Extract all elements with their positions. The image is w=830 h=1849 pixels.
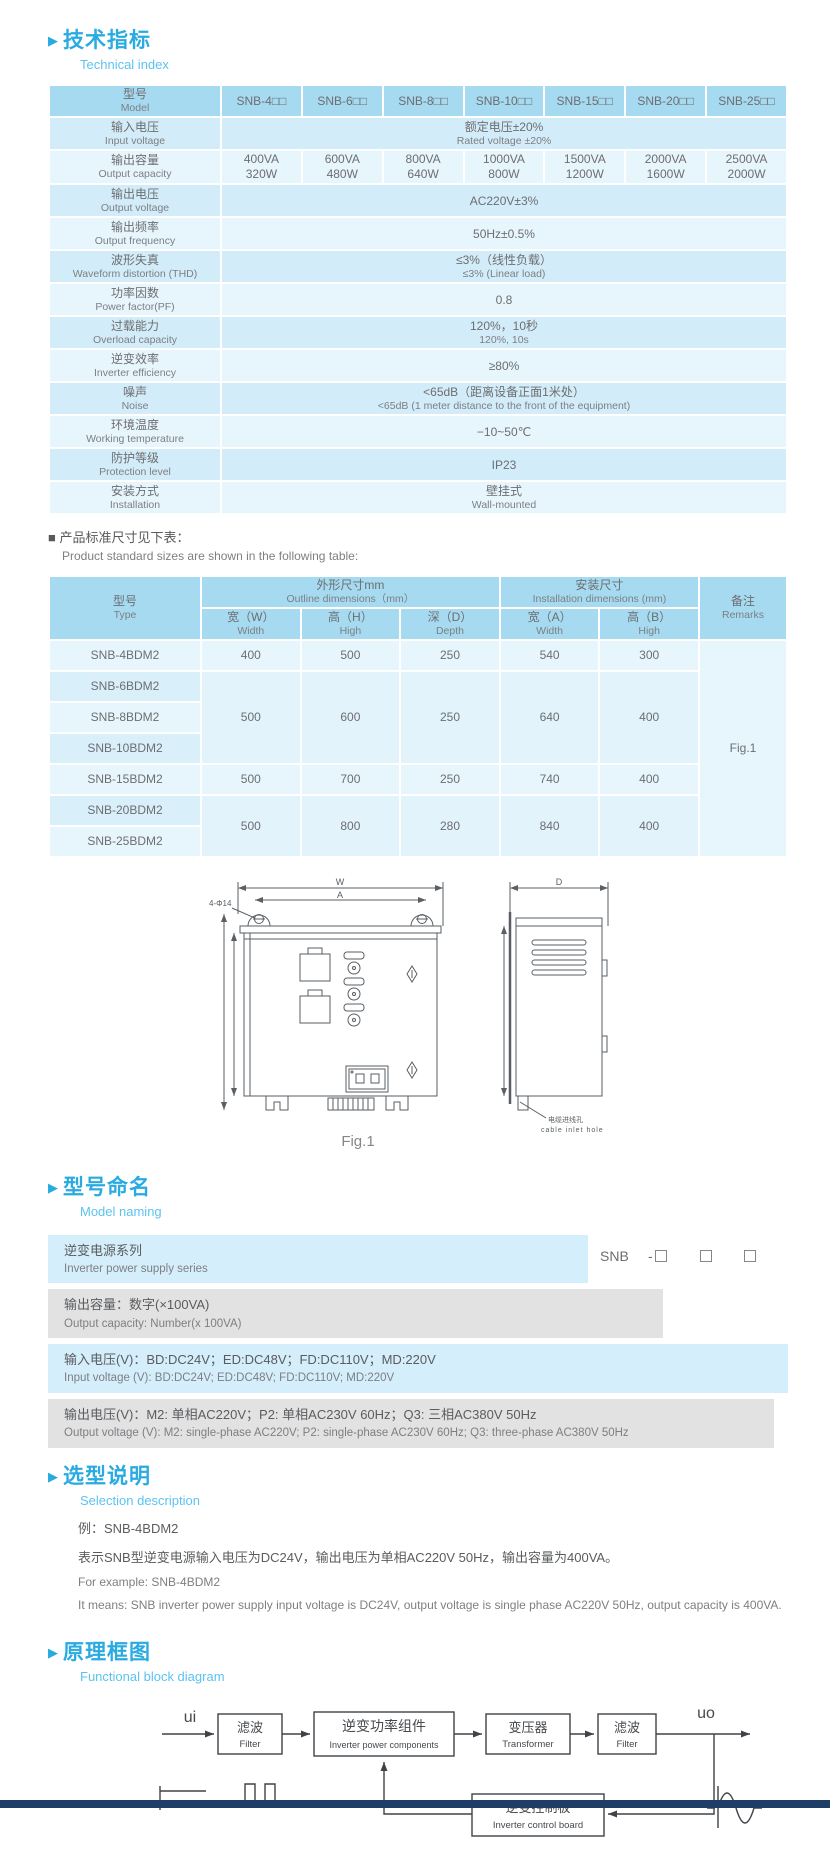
louver-3 xyxy=(532,960,586,965)
spec-value: <65dB（距离设备正面1米处）<65dB (1 meter distance … xyxy=(222,383,786,414)
dim-type: SNB-8BDM2 xyxy=(50,703,200,732)
spec-model-col: SNB-20□□ xyxy=(626,86,705,116)
spec-row-input-voltage: 输入电压Input voltage 额定电压±20%Rated voltage … xyxy=(50,118,786,149)
spec-label: 输出电压Output voltage xyxy=(50,185,220,216)
dim-value: 250 xyxy=(401,641,499,670)
foot-right xyxy=(386,1096,408,1110)
section-model-naming: ▶型号命名 Model naming xyxy=(48,1171,788,1219)
side-foot xyxy=(518,1096,528,1110)
dim-value: 640 xyxy=(501,672,599,763)
spec-value: ≥80% xyxy=(222,350,786,381)
spec-label: 噪声Noise xyxy=(50,383,220,414)
spec-label: 波形失真Waveform distortion (THD) xyxy=(50,251,220,282)
dim-type: SNB-20BDM2 xyxy=(50,796,200,825)
spec-model-col: SNB-6□□ xyxy=(303,86,382,116)
dim-value: 800 xyxy=(302,796,400,856)
dim-header-type: 型号Type xyxy=(50,577,200,638)
holes-leader-line xyxy=(232,908,255,918)
inverter-en: Inverter power components xyxy=(329,1740,439,1750)
model-label-zh: 型号 xyxy=(52,87,218,102)
selection-example-en: For example: SNB-4BDM2 xyxy=(78,1575,788,1589)
dim-label-d: D xyxy=(556,877,563,887)
dim-type: SNB-6BDM2 xyxy=(50,672,200,701)
knob-2 xyxy=(348,988,360,1000)
section-selection-description: ▶选型说明 Selection description xyxy=(48,1460,788,1508)
spec-label: 安装方式Installation xyxy=(50,482,220,513)
terminal-panel xyxy=(346,1066,388,1092)
spec-value: IP23 xyxy=(222,449,786,480)
louver-1 xyxy=(532,940,586,945)
dim-header-remarks: 备注Remarks xyxy=(700,577,786,638)
meter-2 xyxy=(300,996,330,1023)
spec-value: 600VA480W xyxy=(303,151,382,183)
spec-value: 壁挂式Wall-mounted xyxy=(222,482,786,513)
spec-value: 50Hz±0.5% xyxy=(222,218,786,249)
dim-row: SNB-6BDM2 500 600 250 640 400 xyxy=(50,672,786,701)
dim-header-row1: 型号Type 外形尺寸mmOutline dimensions（mm） 安装尺寸… xyxy=(50,577,786,607)
transformer-en: Transformer xyxy=(502,1739,553,1750)
dim-label-a: A xyxy=(337,890,343,900)
dim-row: SNB-20BDM2 500 800 280 840 400 xyxy=(50,796,786,825)
dim-value: 700 xyxy=(302,765,400,794)
dim-row: SNB-15BDM2 500 700 250 740 400 xyxy=(50,765,786,794)
dim-value: 500 xyxy=(202,796,300,856)
section-arrow-icon: ▶ xyxy=(48,33,58,48)
dim-type: SNB-10BDM2 xyxy=(50,734,200,763)
size-note-zh: 产品标准尺寸见下表： xyxy=(59,530,189,545)
dim-value: 500 xyxy=(202,672,300,763)
spec-row-temperature: 环境温度Working temperature −10~50℃ xyxy=(50,416,786,447)
dim-value: 280 xyxy=(401,796,499,856)
filter2-en: Filter xyxy=(616,1739,637,1750)
spec-label: 输出容量Output capacity xyxy=(50,151,220,183)
dim-header-outline: 外形尺寸mmOutline dimensions（mm） xyxy=(202,577,499,607)
spec-value: AC220V±3% xyxy=(222,185,786,216)
spec-value: 1000VA800W xyxy=(465,151,544,183)
dim-col-d: 深（D）Depth xyxy=(401,609,499,639)
section-block-diagram: ▶原理框图 Functional block diagram xyxy=(48,1636,788,1684)
bottom-grille xyxy=(328,1098,374,1110)
code-box-icon xyxy=(744,1250,756,1262)
code-box-icon xyxy=(700,1250,712,1262)
transformer-zh: 变压器 xyxy=(508,1720,547,1735)
block-diagram-svg: ui uo 滤波 Filter 逆变功率组件 Inverter power co… xyxy=(142,1696,762,1844)
size-note-en: Product standard sizes are shown in the … xyxy=(62,549,788,563)
selection-desc-en: It means: SNB inverter power supply inpu… xyxy=(78,1598,788,1612)
naming-row-input-voltage: 输入电压(V)：BD:DC24V；ED:DC48V；FD:DC110V；MD:2… xyxy=(48,1344,788,1393)
dim-col-h: 高（H）High xyxy=(302,609,400,639)
footer-bar xyxy=(0,1800,830,1808)
dim-type: SNB-25BDM2 xyxy=(50,827,200,856)
spec-label: 过载能力Overload capacity xyxy=(50,317,220,348)
dim-value: 300 xyxy=(600,641,698,670)
filter1-en: Filter xyxy=(239,1739,260,1750)
code-box-icon xyxy=(655,1250,667,1262)
naming-row-capacity: 输出容量：数字(×100VA) Output capacity: Number(… xyxy=(48,1289,663,1338)
cabinet-top-flange xyxy=(240,926,441,933)
cabinet-side xyxy=(516,926,602,1096)
inverter-zh: 逆变功率组件 xyxy=(342,1718,426,1734)
holes-label: 4-Φ14 xyxy=(209,899,232,908)
code-output-slot xyxy=(742,1248,756,1264)
figure-1: W A D 4-Φ14 电缆进线孔 cable inlet hole Fig.1 xyxy=(208,874,788,1159)
cable-inlet-label-zh: 电缆进线孔 xyxy=(548,1115,583,1124)
block-diagram: ui uo 滤波 Filter 逆变功率组件 Inverter power co… xyxy=(142,1696,788,1849)
spec-value: 800VA640W xyxy=(384,151,463,183)
hinge-bottom xyxy=(602,1036,607,1052)
model-naming-diagram: SNB - 逆变电源系列 Inverter power supply serie… xyxy=(48,1235,788,1448)
louver-4 xyxy=(532,970,586,975)
dimension-table: 型号Type 外形尺寸mmOutline dimensions（mm） 安装尺寸… xyxy=(48,575,788,857)
size-note: ■ 产品标准尺寸见下表： Product standard sizes are … xyxy=(48,527,788,563)
technical-title-en: Technical index xyxy=(80,57,788,72)
dim-value: 840 xyxy=(501,796,599,856)
spec-model-col: SNB-15□□ xyxy=(545,86,624,116)
spec-value: 2000VA1600W xyxy=(626,151,705,183)
section-technical-index: ▶技术指标 Technical index xyxy=(48,24,788,72)
spec-label: 环境温度Working temperature xyxy=(50,416,220,447)
output-label: uo xyxy=(697,1705,715,1722)
filter2-zh: 滤波 xyxy=(614,1720,640,1735)
block-title-zh: 原理框图 xyxy=(63,1641,151,1664)
dim-row: SNB-4BDM2 400 500 250 540 300 Fig.1 xyxy=(50,641,786,670)
spec-model-col: SNB-10□□ xyxy=(465,86,544,116)
meter-1 xyxy=(300,954,330,981)
spec-label: 输入电压Input voltage xyxy=(50,118,220,149)
code-series: SNB xyxy=(600,1248,629,1264)
spec-label: 逆变效率Inverter efficiency xyxy=(50,350,220,381)
spec-row-output-frequency: 输出频率Output frequency 50Hz±0.5% xyxy=(50,218,786,249)
louver-2 xyxy=(532,950,586,955)
spec-model-col: SNB-25□□ xyxy=(707,86,786,116)
knob-3 xyxy=(348,1014,360,1026)
spec-value: 2500VA2000W xyxy=(707,151,786,183)
page-content: ▶技术指标 Technical index 型号Model SNB-4□□ SN… xyxy=(0,0,830,1849)
spec-row-output-capacity: 输出容量Output capacity 400VA320W 600VA480W … xyxy=(50,151,786,183)
dim-value: 500 xyxy=(302,641,400,670)
dim-value: 400 xyxy=(202,641,300,670)
spec-header-row: 型号Model SNB-4□□ SNB-6□□ SNB-8□□ SNB-10□□… xyxy=(50,86,786,116)
spec-table: 型号Model SNB-4□□ SNB-6□□ SNB-8□□ SNB-10□□… xyxy=(48,84,788,515)
dim-type: SNB-4BDM2 xyxy=(50,641,200,670)
spec-value: 120%，10秒120%, 10s xyxy=(222,317,786,348)
spec-row-overload: 过载能力Overload capacity 120%，10秒120%, 10s xyxy=(50,317,786,348)
figure-caption: Fig.1 xyxy=(341,1133,374,1150)
spec-row-waveform: 波形失真Waveform distortion (THD) ≤3%（线性负载）≤… xyxy=(50,251,786,282)
cabinet-drawing: W A D 4-Φ14 电缆进线孔 cable inlet hole Fig.1 xyxy=(208,874,628,1154)
control-en: Inverter control board xyxy=(493,1820,583,1831)
spec-row-efficiency: 逆变效率Inverter efficiency ≥80% xyxy=(50,350,786,381)
catalog-page: { "colors":{"accent":"#29abe2","accent_l… xyxy=(0,0,830,1808)
dim-value: 250 xyxy=(401,765,499,794)
technical-title-zh: 技术指标 xyxy=(63,29,151,52)
dim-value: 540 xyxy=(501,641,599,670)
spec-value: 0.8 xyxy=(222,284,786,315)
section-arrow-icon: ▶ xyxy=(48,1469,58,1484)
section-arrow-icon: ▶ xyxy=(48,1180,58,1195)
spec-model-col: SNB-8□□ xyxy=(384,86,463,116)
switch-1 xyxy=(344,952,364,959)
dim-value: 400 xyxy=(600,765,698,794)
naming-title-en: Model naming xyxy=(80,1204,788,1219)
knob-1 xyxy=(348,962,360,974)
spec-row-power-factor: 功率因数Power factor(PF) 0.8 xyxy=(50,284,786,315)
dim-remark: Fig.1 xyxy=(700,641,786,856)
spec-row-output-voltage: 输出电压Output voltage AC220V±3% xyxy=(50,185,786,216)
naming-row-output-voltage: 输出电压(V)：M2: 单相AC220V；P2: 单相AC230V 60Hz；Q… xyxy=(48,1399,774,1448)
dim-type: SNB-15BDM2 xyxy=(50,765,200,794)
dim-value: 500 xyxy=(202,765,300,794)
selection-example-zh: 例：SNB-4BDM2 xyxy=(78,1518,788,1537)
selection-title-en: Selection description xyxy=(80,1493,788,1508)
naming-title-zh: 型号命名 xyxy=(63,1176,151,1199)
foot-left xyxy=(266,1096,288,1110)
filter1-zh: 滤波 xyxy=(237,1720,263,1735)
dim-col-w: 宽（W）Width xyxy=(202,609,300,639)
spec-label: 功率因数Power factor(PF) xyxy=(50,284,220,315)
code-dash: - xyxy=(648,1248,653,1264)
spec-value: ≤3%（线性负载）≤3% (Linear load) xyxy=(222,251,786,282)
dim-value: 600 xyxy=(302,672,400,763)
side-top-flange xyxy=(516,918,602,926)
code-input-slot xyxy=(698,1248,712,1264)
input-label: ui xyxy=(184,1709,196,1726)
dim-value: 400 xyxy=(600,672,698,763)
dim-value: 740 xyxy=(501,765,599,794)
spec-label: 防护等级Protection level xyxy=(50,449,220,480)
selection-desc-zh: 表示SNB型逆变电源输入电压为DC24V，输出电压为单相AC220V 50Hz，… xyxy=(78,1547,788,1566)
model-code-row: SNB - xyxy=(48,1248,788,1266)
cable-inlet-label-en: cable inlet hole xyxy=(541,1127,604,1134)
square-bullet-icon: ■ xyxy=(48,530,56,545)
model-label-en: Model xyxy=(52,102,218,115)
section-arrow-icon: ▶ xyxy=(48,1645,58,1660)
dim-value: 400 xyxy=(600,796,698,856)
spec-model-col: SNB-4□□ xyxy=(222,86,301,116)
spec-row-installation: 安装方式Installation 壁挂式Wall-mounted xyxy=(50,482,786,513)
dim-header-install: 安装尺寸Installation dimensions (mm) xyxy=(501,577,698,607)
dim-label-w: W xyxy=(336,877,345,887)
code-capacity-slot: - xyxy=(648,1248,667,1264)
spec-header-model: 型号Model xyxy=(50,86,220,116)
switch-2 xyxy=(344,978,364,985)
spec-value: 400VA320W xyxy=(222,151,301,183)
dim-value: 250 xyxy=(401,672,499,763)
hinge-top xyxy=(602,960,607,976)
spec-value: −10~50℃ xyxy=(222,416,786,447)
spec-row-noise: 噪声Noise <65dB（距离设备正面1米处）<65dB (1 meter d… xyxy=(50,383,786,414)
mount-ear-right xyxy=(411,915,433,926)
switch-3 xyxy=(344,1004,364,1011)
selection-title-zh: 选型说明 xyxy=(63,1465,151,1488)
spec-value: 1500VA1200W xyxy=(545,151,624,183)
dim-col-a: 宽（A）Width xyxy=(501,609,599,639)
spec-row-protection: 防护等级Protection level IP23 xyxy=(50,449,786,480)
spec-value: 额定电压±20%Rated voltage ±20% xyxy=(222,118,786,149)
spec-label: 输出频率Output frequency xyxy=(50,218,220,249)
dim-col-b: 高（B）High xyxy=(600,609,698,639)
block-title-en: Functional block diagram xyxy=(80,1669,788,1684)
